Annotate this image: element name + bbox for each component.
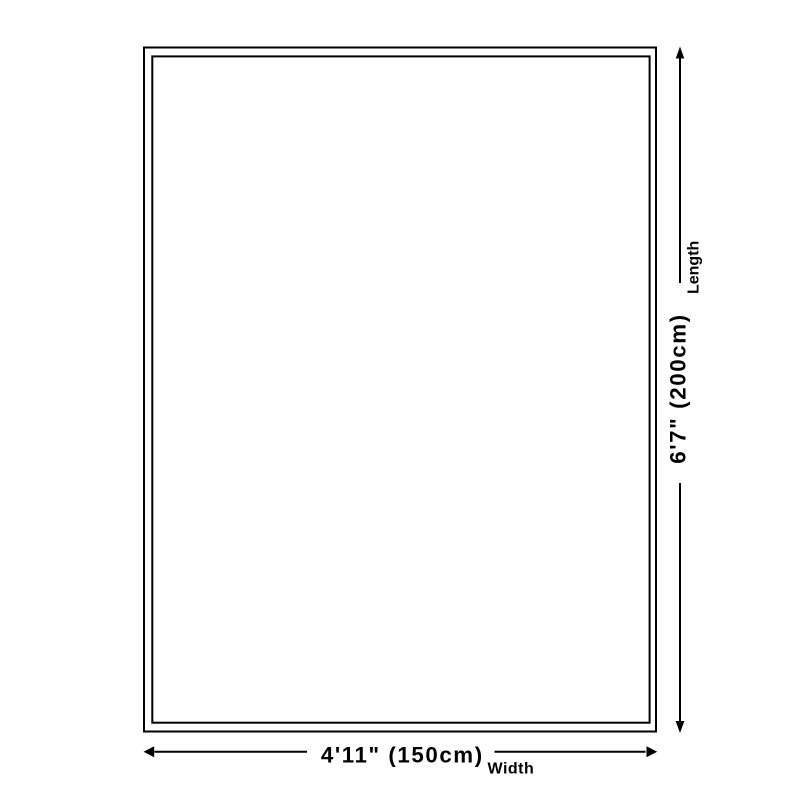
svg-text:6'7" (200cm): 6'7" (200cm) <box>665 313 690 464</box>
svg-text:4'11" (150cm): 4'11" (150cm) <box>321 743 484 768</box>
svg-text:Width: Width <box>488 761 535 778</box>
svg-text:Length: Length <box>686 241 703 294</box>
